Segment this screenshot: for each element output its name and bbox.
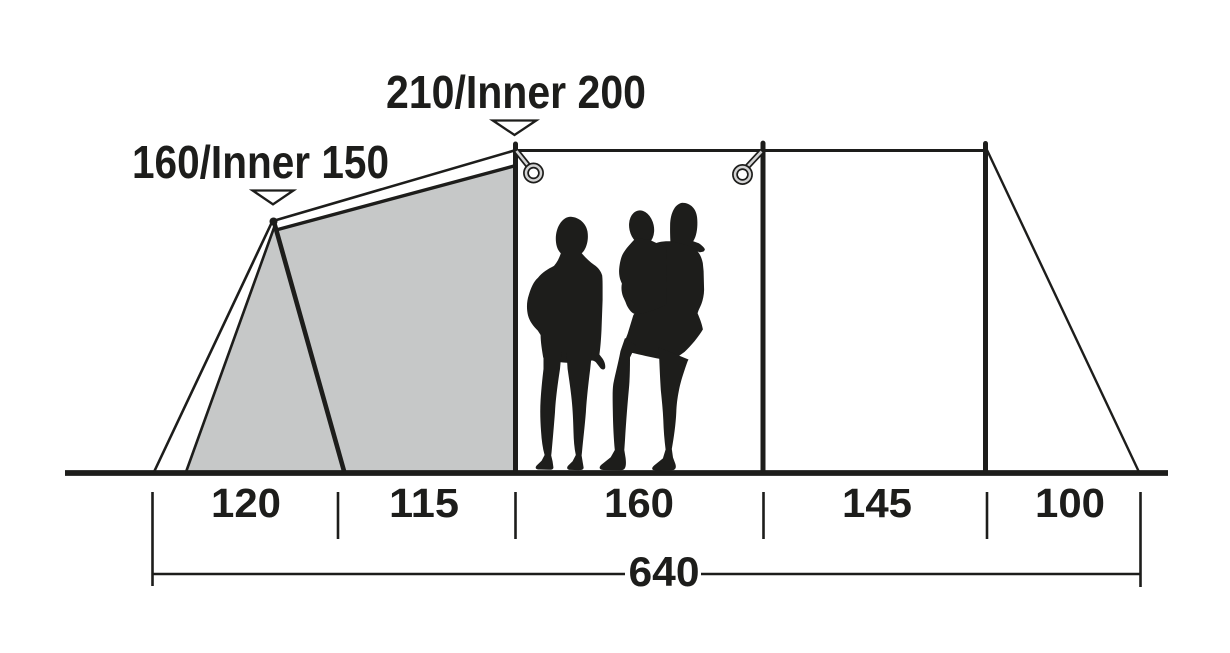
svg-text:100: 100 — [1035, 480, 1105, 526]
svg-text:160: 160 — [604, 480, 674, 526]
svg-text:120: 120 — [211, 480, 281, 526]
svg-text:115: 115 — [389, 480, 459, 526]
svg-text:640: 640 — [629, 548, 700, 595]
svg-text:160/Inner 150: 160/Inner 150 — [132, 136, 389, 188]
svg-text:145: 145 — [842, 480, 912, 526]
svg-text:210/Inner 200: 210/Inner 200 — [386, 66, 646, 118]
